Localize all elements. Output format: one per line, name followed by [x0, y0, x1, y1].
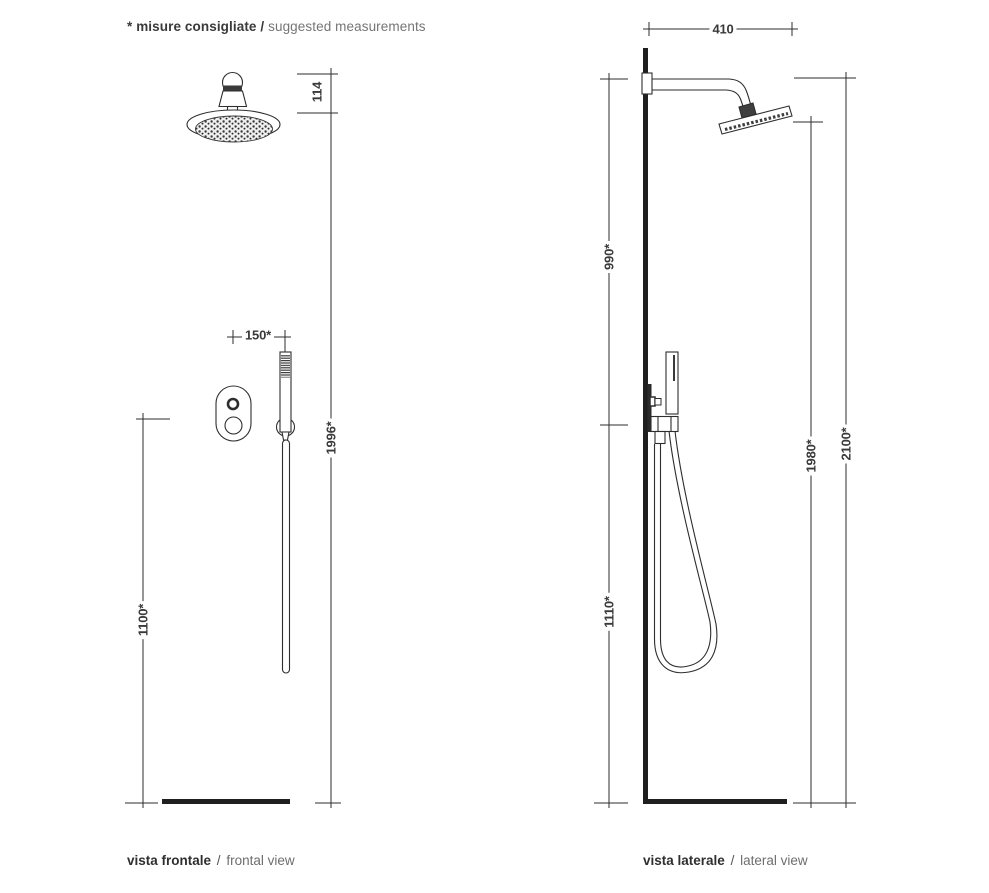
arm-wall-flange [642, 73, 652, 94]
lateral-caption-italian: vista laterale [643, 853, 725, 868]
dim-label-arm-from-floor: 2100* [839, 425, 854, 464]
hose-nut [655, 432, 665, 444]
dim-label-arm-to-holder: 990* [602, 241, 617, 273]
frontal-caption-italian: vista frontale [127, 853, 211, 868]
note-italian: * misure consigliate / [127, 19, 264, 34]
hose-loop-outer [655, 431, 717, 673]
note-english: suggested measurements [268, 19, 426, 34]
dim-label-valve-height: 1100* [136, 601, 151, 639]
overhead-shower-lateral [642, 73, 792, 134]
dim-label-arm-projection: 410 [709, 22, 736, 37]
valve-diverter-knob [228, 399, 238, 409]
outlet-block [651, 417, 678, 432]
lateral-caption-english: lateral view [740, 853, 808, 868]
suggested-measurements-note: * misure consigliate / suggested measure… [127, 19, 426, 34]
lateral-dimension-lines [594, 22, 856, 808]
handle-lateral [666, 352, 678, 414]
hand-shower-grip-hatch [281, 355, 290, 378]
floor-lateral [643, 799, 787, 804]
hose-loop-inner [661, 431, 711, 667]
dim-label-valve-to-handshower: 150* [242, 328, 274, 343]
hand-shower-lateral [648, 352, 717, 673]
dim-label-head-height: 114 [310, 79, 325, 105]
lateral-caption-separator: / [729, 853, 737, 868]
valve-control-knob [225, 417, 242, 434]
frontal-view-caption: vista frontale / frontal view [127, 853, 295, 868]
lateral-view-caption: vista laterale / lateral view [643, 853, 808, 868]
shower-head-face [196, 116, 273, 142]
lateral-view-drawing [594, 22, 856, 808]
dim-label-handshower-height: 1996* [324, 419, 339, 458]
dim-label-holder-to-floor: 1110* [602, 593, 617, 631]
measurement-diagram-canvas: * misure consigliate / suggested measure… [0, 0, 989, 893]
frontal-caption-separator: / [215, 853, 223, 868]
overhead-shower-frontal [187, 73, 280, 143]
wall-lateral [643, 48, 648, 801]
frontal-caption-english: frontal view [226, 853, 294, 868]
frontal-view-drawing [125, 68, 341, 808]
floor-frontal [162, 799, 290, 804]
hand-shower-hose [283, 440, 290, 673]
mixer-valve [216, 386, 251, 441]
hand-shower-frontal [277, 352, 295, 673]
dim-label-head-from-floor: 1980* [804, 437, 819, 476]
holder-bracket [650, 397, 655, 406]
